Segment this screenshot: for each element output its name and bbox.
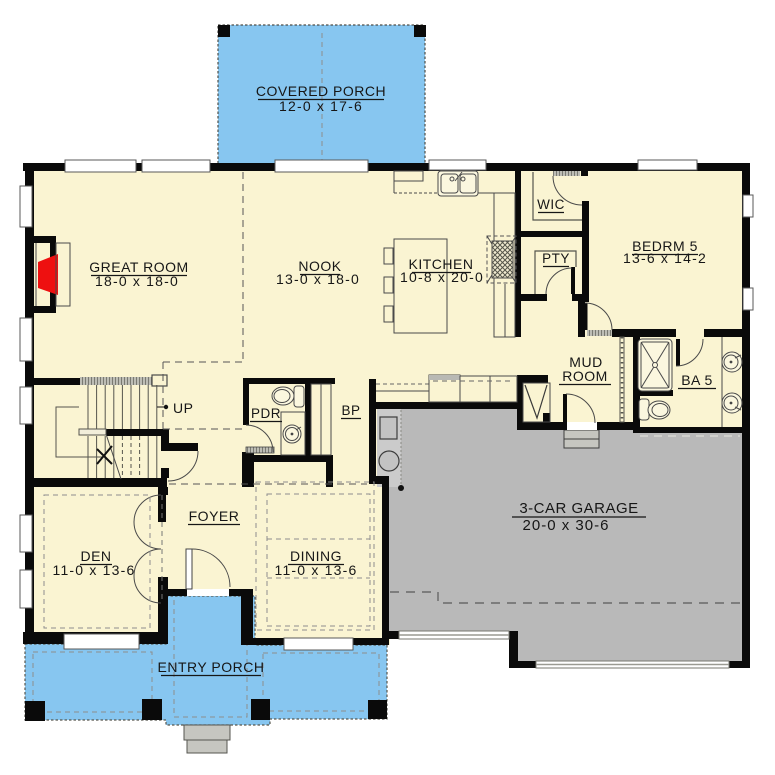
svg-text:13-0 x 18-0: 13-0 x 18-0 — [276, 271, 360, 287]
svg-text:BA 5: BA 5 — [681, 372, 713, 388]
svg-text:FOYER: FOYER — [189, 508, 240, 524]
svg-text:13-6 x 14-2: 13-6 x 14-2 — [623, 250, 707, 266]
svg-text:20-0 x 30-6: 20-0 x 30-6 — [523, 517, 610, 534]
svg-text:WIC: WIC — [537, 197, 565, 212]
svg-text:ENTRY PORCH: ENTRY PORCH — [158, 659, 265, 675]
svg-text:10-8 x 20-0: 10-8 x 20-0 — [400, 269, 484, 285]
svg-text:ROOM: ROOM — [562, 368, 608, 384]
svg-text:18-0 x 18-0: 18-0 x 18-0 — [95, 273, 179, 289]
svg-text:COVERED PORCH: COVERED PORCH — [256, 83, 386, 99]
svg-text:UP: UP — [173, 400, 193, 416]
svg-text:3-CAR GARAGE: 3-CAR GARAGE — [519, 500, 638, 517]
svg-text:PDR: PDR — [251, 406, 281, 421]
svg-text:BP: BP — [341, 403, 360, 418]
svg-text:12-0 x 17-6: 12-0 x 17-6 — [279, 98, 363, 114]
svg-text:11-0 x 13-6: 11-0 x 13-6 — [53, 562, 136, 578]
svg-text:PTY: PTY — [542, 251, 570, 266]
svg-text:11-0 x 13-6: 11-0 x 13-6 — [275, 562, 358, 578]
